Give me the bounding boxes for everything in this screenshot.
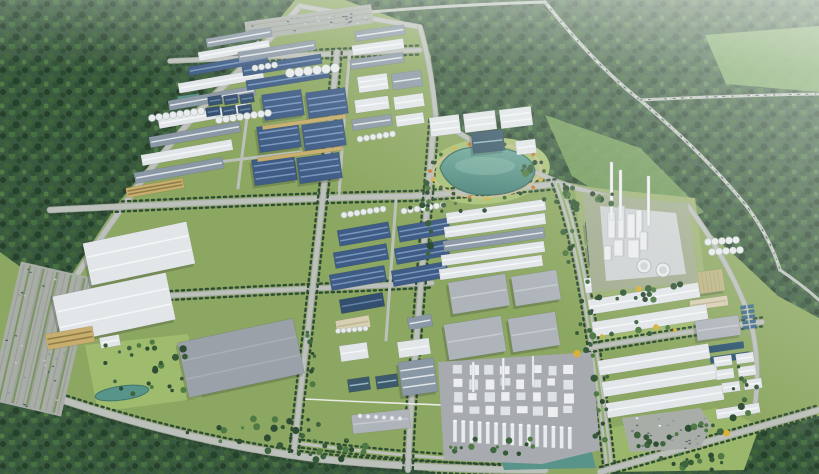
tree [425, 190, 430, 195]
storage-tank [251, 112, 258, 119]
tree [152, 345, 157, 350]
storage-tank [705, 239, 712, 246]
tree [237, 439, 243, 445]
tree [579, 322, 583, 326]
tree [704, 428, 708, 432]
flower-bed [503, 196, 507, 200]
storage-tank [723, 248, 730, 255]
storage-tank [348, 211, 354, 217]
tree [596, 294, 602, 300]
tree [172, 354, 179, 361]
parked-car [697, 435, 699, 436]
process-tower [484, 365, 494, 375]
silo-top [568, 427, 572, 429]
storage-tank [304, 67, 313, 76]
industrial-park-aerial-render [0, 0, 819, 474]
storage-tank [361, 209, 367, 215]
tree [522, 170, 529, 177]
tree [342, 446, 348, 452]
silo-chimney [494, 424, 498, 445]
tree [454, 446, 458, 450]
storage-tank [398, 416, 402, 420]
parked-car [658, 418, 660, 419]
storage-tank [726, 237, 733, 244]
tree [620, 289, 627, 296]
tree [589, 332, 596, 339]
tree [708, 453, 714, 459]
silo-top [494, 422, 498, 424]
tree [659, 456, 664, 461]
storage-tank [216, 117, 223, 124]
process-tower [533, 392, 541, 401]
tree [150, 385, 154, 389]
tree [321, 454, 326, 459]
tree [297, 452, 301, 456]
storage-tank [719, 238, 726, 245]
flower-bed [431, 178, 435, 182]
tree [608, 201, 614, 207]
storage-tank [712, 238, 719, 245]
building-white [515, 139, 537, 155]
tree [738, 403, 745, 410]
process-tower [485, 379, 494, 390]
storage-tank [380, 206, 386, 212]
parked-car [647, 433, 649, 434]
plant-tower-shade [615, 212, 616, 238]
tree [605, 375, 609, 379]
tree [615, 297, 619, 301]
flower-bed [531, 186, 535, 190]
lake-reflection [455, 157, 515, 175]
tree [429, 229, 433, 233]
tree [300, 433, 305, 438]
storage-tank [374, 207, 380, 213]
scene-layers [0, 0, 819, 474]
process-tower [563, 380, 573, 390]
silo-chimney [461, 422, 465, 443]
tree [426, 199, 431, 204]
tree [647, 292, 652, 297]
tree [218, 439, 222, 443]
storage-tank [401, 208, 407, 214]
tree [362, 443, 369, 450]
storage-tank [336, 329, 341, 334]
tree [697, 459, 702, 464]
tree [147, 381, 151, 385]
flower-bed [452, 192, 456, 196]
tree [554, 200, 558, 204]
storage-tank [730, 247, 737, 254]
parked-car [695, 438, 697, 439]
tree [290, 449, 294, 453]
tree [441, 202, 446, 207]
tall-stack [647, 176, 650, 226]
tree [636, 444, 640, 448]
tree [562, 250, 568, 256]
tree [532, 160, 537, 165]
tree [590, 191, 595, 196]
silo-top [469, 421, 473, 423]
tree [710, 467, 714, 471]
storage-tank [434, 203, 440, 209]
tree [137, 343, 142, 348]
tree [307, 428, 311, 432]
tree [704, 423, 708, 427]
silo-top [519, 424, 523, 426]
tree [253, 423, 260, 430]
tree [695, 453, 701, 459]
storage-tank [313, 66, 322, 75]
storage-tank [237, 114, 244, 121]
tree [186, 431, 189, 434]
tree [264, 434, 271, 441]
tree [313, 439, 316, 442]
tree [522, 164, 527, 169]
silo-chimney [486, 423, 490, 444]
roof [499, 106, 533, 129]
parked-car [672, 420, 674, 421]
tree [316, 422, 321, 427]
tree [591, 354, 595, 358]
tree [567, 192, 571, 196]
tree [167, 384, 171, 388]
process-tower [547, 392, 556, 402]
tree [425, 220, 431, 226]
tree [675, 432, 679, 436]
storage-tank [265, 110, 272, 117]
parked-car [631, 430, 633, 431]
storage-tank [364, 135, 370, 141]
storage-tank [347, 328, 352, 333]
building-white [735, 352, 754, 364]
storage-tank [367, 208, 373, 214]
tree [573, 350, 580, 357]
tree [691, 423, 698, 430]
building-blued [223, 94, 238, 105]
tree [216, 425, 221, 430]
storage-tank [163, 113, 170, 120]
tree [610, 192, 614, 196]
storage-tank [377, 133, 383, 139]
tree [723, 430, 730, 437]
silo-top [543, 425, 547, 427]
silo-top [486, 422, 490, 424]
tree [653, 324, 659, 330]
silo-top [461, 420, 465, 422]
tree [313, 355, 316, 358]
building-glass [375, 374, 399, 390]
tree [306, 418, 310, 422]
tree [588, 310, 594, 316]
silo-top [535, 425, 539, 427]
tree [634, 320, 638, 324]
building-white [713, 355, 732, 367]
process-tower [517, 406, 528, 414]
storage-tank [322, 65, 331, 74]
plant-tower-shade [611, 246, 612, 260]
tree [419, 202, 425, 208]
building-glass [347, 377, 371, 393]
tree [717, 428, 724, 435]
tree [277, 442, 284, 449]
parked-car [686, 441, 688, 442]
tree [459, 209, 463, 213]
storage-tank [358, 327, 363, 332]
parked-car [667, 425, 669, 426]
silo-top [502, 423, 506, 425]
tree [313, 456, 320, 463]
tree [468, 198, 472, 202]
tree [677, 281, 683, 287]
process-tower [564, 393, 574, 403]
storage-tank [370, 134, 376, 140]
tree [241, 426, 244, 429]
flower-bed [452, 146, 456, 150]
building-white [715, 368, 734, 380]
storage-tank [272, 62, 278, 68]
process-tower [484, 392, 495, 402]
tree [250, 416, 257, 423]
silo-chimney [502, 424, 506, 445]
tree [170, 389, 174, 393]
storage-tank [244, 113, 251, 120]
process-tower [516, 379, 524, 389]
process-tower [468, 393, 477, 401]
flower-bed [539, 160, 543, 164]
tree [408, 206, 412, 210]
tree [449, 445, 452, 448]
storage-tank [265, 63, 271, 69]
storage-tank [363, 326, 368, 331]
tree [670, 283, 677, 290]
storage-tank [383, 132, 389, 138]
tree [560, 229, 566, 235]
building-blued [207, 95, 222, 106]
building-blued [205, 106, 220, 117]
cooling-tower-mouth [659, 266, 667, 274]
silo-chimney [560, 428, 564, 449]
storage-tank [295, 68, 304, 77]
tree [496, 445, 499, 448]
tree [349, 447, 354, 452]
storage-tank [184, 110, 191, 117]
tree [742, 397, 747, 402]
tree [570, 229, 574, 233]
tree [600, 334, 604, 338]
parked-car [636, 418, 638, 419]
tree [570, 200, 577, 207]
tree [754, 385, 759, 390]
storage-tank [156, 114, 163, 121]
flower-bed [439, 153, 443, 157]
tree [307, 339, 312, 344]
process-tower [563, 406, 572, 414]
tree [672, 462, 676, 466]
silo-chimney [453, 421, 457, 442]
parked-car [659, 425, 661, 426]
silo-chimney [519, 425, 523, 446]
process-tower [516, 392, 525, 400]
tree [600, 399, 605, 404]
tree [575, 331, 579, 335]
tree [583, 347, 589, 353]
tree [604, 407, 608, 411]
tree [646, 439, 652, 445]
process-tower [548, 407, 558, 417]
tree [602, 437, 608, 443]
tree [597, 408, 601, 412]
tree [647, 331, 652, 336]
parked-car [671, 440, 673, 441]
parked-car [688, 443, 690, 444]
tall-stack [619, 170, 622, 220]
tree [636, 286, 642, 292]
storage-tank [259, 64, 265, 70]
tree [650, 296, 656, 302]
parked-car [636, 425, 638, 426]
tree [429, 239, 432, 242]
tree [159, 361, 163, 365]
tree [720, 461, 723, 464]
parked-car [680, 429, 682, 430]
tree [681, 460, 688, 467]
tree [737, 365, 740, 368]
silo-top [551, 426, 555, 428]
tree [517, 451, 522, 456]
tree [292, 427, 299, 434]
storage-tank [286, 69, 295, 78]
tree [530, 444, 535, 449]
tree [103, 361, 107, 365]
tree [427, 242, 434, 249]
tree [328, 450, 331, 453]
plant-tower-shade [623, 240, 624, 256]
storage-tank [149, 115, 156, 122]
tree [699, 421, 704, 426]
process-tower [548, 366, 556, 376]
scene-canvas [0, 0, 819, 474]
tree [642, 297, 647, 302]
tree [187, 443, 192, 448]
parked-car [688, 440, 690, 441]
tree [667, 434, 672, 439]
tree [150, 339, 155, 344]
storage-tank [390, 131, 396, 137]
tree [179, 442, 184, 447]
building-white [463, 110, 497, 133]
tree [601, 422, 605, 426]
tree [310, 381, 316, 387]
storage-tank [230, 115, 237, 122]
storage-tank [390, 416, 394, 420]
building-glass [469, 129, 506, 156]
tree [673, 328, 677, 332]
tree [567, 245, 573, 251]
tree [153, 368, 157, 372]
tree [678, 453, 681, 456]
silo-top [510, 423, 514, 425]
storage-tank [341, 328, 346, 333]
building-gray [505, 311, 561, 355]
tree [423, 180, 429, 186]
tree [660, 441, 665, 446]
tree [182, 354, 188, 360]
storage-tank [170, 112, 177, 119]
tree [309, 452, 313, 456]
tree [426, 251, 431, 256]
tree [425, 185, 431, 191]
storage-tank [366, 414, 370, 418]
storage-tank [716, 248, 723, 255]
building-slate [395, 358, 438, 400]
tree [645, 285, 652, 292]
process-tower [517, 364, 526, 373]
storage-tank [341, 212, 347, 218]
roof [429, 114, 461, 137]
tall-stack [610, 162, 613, 220]
storage-tank [354, 210, 360, 216]
storage-tank [737, 247, 744, 254]
storage-tank [352, 327, 357, 332]
tree [542, 197, 547, 202]
tree [685, 458, 688, 461]
tree [425, 207, 430, 212]
tree [587, 328, 592, 333]
building-white [737, 365, 756, 377]
tree [118, 350, 121, 353]
tree [528, 437, 533, 442]
tree [361, 449, 367, 455]
tree [130, 353, 134, 357]
storage-tank [177, 111, 184, 118]
building-white [429, 114, 461, 137]
tree [322, 443, 327, 448]
silo-top [478, 421, 482, 423]
tree [286, 418, 292, 424]
tree [641, 292, 646, 297]
parked-car [684, 448, 686, 449]
storage-tank [733, 237, 740, 244]
tree [180, 387, 186, 393]
building-white [499, 106, 533, 129]
parked-car [696, 443, 698, 444]
tree [345, 439, 348, 442]
tree [145, 347, 149, 351]
tree [718, 453, 725, 460]
cooling-tower-mouth [640, 262, 648, 270]
tree [119, 386, 123, 390]
tree [103, 343, 107, 347]
plant-tower-shade [647, 232, 648, 250]
tree [651, 287, 656, 292]
process-tower [500, 406, 510, 415]
tree [566, 260, 570, 264]
tree [272, 416, 278, 422]
silo-chimney [543, 427, 547, 448]
tree [634, 296, 638, 300]
storage-tank [198, 108, 205, 115]
storage-tank [331, 64, 340, 73]
process-tower [563, 365, 573, 375]
process-tower [453, 379, 462, 388]
tree [454, 202, 457, 205]
tree [503, 450, 508, 455]
building-blue [259, 89, 305, 123]
tree [589, 343, 593, 347]
plant-tower [628, 240, 640, 258]
silo-chimney [551, 427, 555, 448]
tree [460, 446, 463, 449]
